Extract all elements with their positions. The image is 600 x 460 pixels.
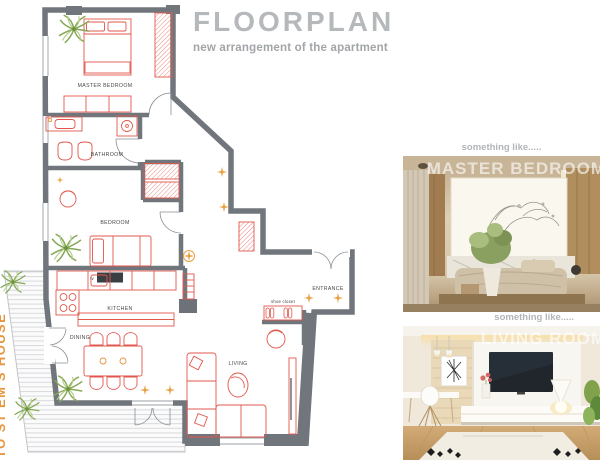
photo-title-master-bedroom: MASTER BEDROOM <box>427 159 600 179</box>
page-subtitle: new arrangement of the apartment <box>193 42 398 54</box>
room-label-living: LIVING <box>228 361 247 367</box>
room-label-bathroom: BATHROOM <box>91 152 123 158</box>
floorplan: MASTER BEDROOM BATHROOM BEDROOM KITCHEN … <box>0 0 400 460</box>
photo-title-living-room: LIVING ROOM <box>481 329 600 349</box>
room-label-master-bedroom: MASTER BEDROOM <box>78 83 133 89</box>
photo-master-bedroom: MASTER BEDROOM <box>403 156 600 312</box>
room-label-kitchen: KITCHEN <box>107 306 132 312</box>
photo-caption-master-bedroom: something like..... <box>403 142 600 153</box>
room-label-tv: tv <box>90 276 94 281</box>
room-label-shoe-closet: shoe closet <box>271 299 296 304</box>
master-bedroom-photo-art <box>403 156 600 312</box>
photo-living-room: LIVING ROOM <box>403 326 600 460</box>
room-label-bedroom: BEDROOM <box>100 220 129 226</box>
photo-caption-living-room: something like..... <box>403 312 600 323</box>
header: FLOORPLAN new arrangement of the apartme… <box>193 8 398 54</box>
room-label-dining: DINING <box>70 335 90 341</box>
poster: TO ST EM'S HOUSE <box>0 0 600 460</box>
page-title: FLOORPLAN <box>193 8 398 36</box>
room-label-entrance: ENTRANCE <box>312 286 344 292</box>
